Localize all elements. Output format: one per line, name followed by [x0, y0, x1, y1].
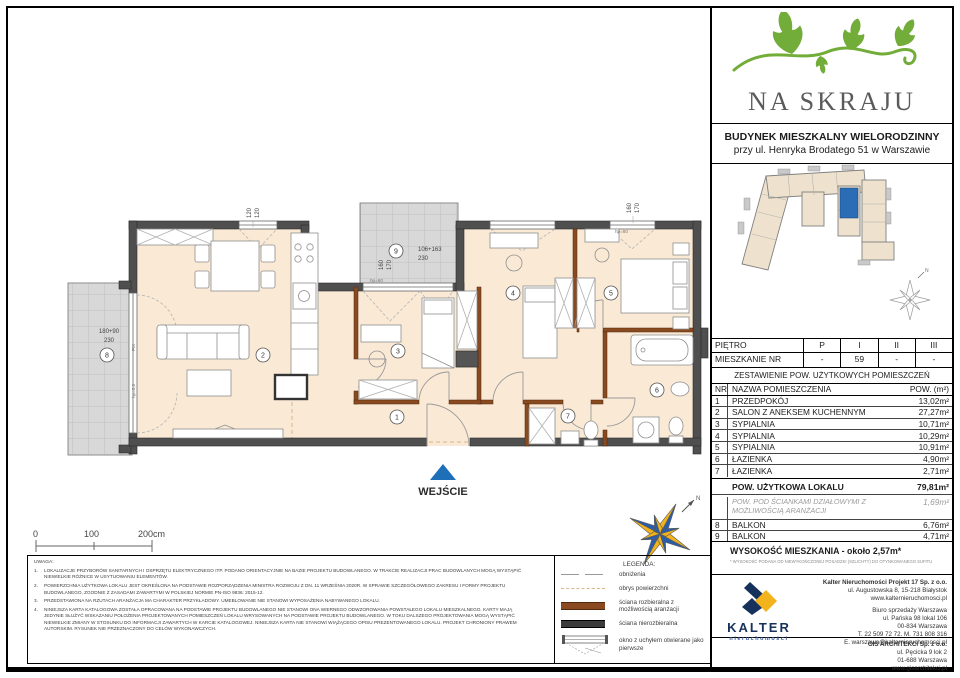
development-name: NA SKRAJU	[712, 87, 952, 117]
dim-balcony9-2: 230	[418, 256, 429, 262]
areas-table: NR NAZWA POMIESZCZENIA POW. (m²) 1 PRZED…	[712, 384, 952, 479]
areas-table-header: NR NAZWA POMIESZCZENIA POW. (m²)	[712, 384, 952, 396]
kalter-website-link[interactable]: www.kalternieruchomosci.pl	[798, 595, 947, 603]
room-label-9: 9	[394, 249, 398, 256]
dim-bedroom5-window-a: 160	[627, 202, 633, 213]
note-item: 2. POWIERZCHNIA UŻYTKOWA LOKALU JEST OKR…	[34, 583, 548, 596]
dim-salon-window-b: 120	[255, 207, 261, 218]
legend-item-demountable-wall: ściana rozbieralna z możliwością aranżac…	[561, 599, 704, 615]
partition-area-label: POW. POD ŚCIANKAMI DZIAŁOWYMI Z MOŻLIWOŚ…	[728, 497, 891, 515]
notes-box: UWAGA: 1. LOKALIZACJE PRZYBORÓW SANITARN…	[27, 555, 555, 664]
dim-balcony8-2: 230	[104, 338, 115, 344]
floor-plan-drawing: 1 2 3 4 5 6 7 8 9 120 120 180+90	[25, 183, 715, 518]
title-block: NA SKRAJU BUDYNEK MIESZKALNY WIELORODZIN…	[710, 8, 952, 667]
table-row: 2 SALON Z ANEKSEM KUCHENNYM 27,27m²	[712, 407, 952, 419]
site-plan: N	[712, 164, 952, 339]
outline-symbol	[561, 588, 619, 589]
dim-balcony9-1: 106+163	[418, 247, 442, 253]
developer-contact: KALTER nieruchomości Kalter Nieruchomośc…	[712, 575, 952, 638]
room-label-6: 6	[655, 388, 659, 395]
total-area-value: 79,81m²	[891, 482, 952, 492]
kalter-logo-mark	[732, 581, 786, 615]
legend-item-fixed-wall: ściana nierozbieralna	[561, 620, 704, 628]
dim-salon-window-a: 120	[247, 207, 253, 218]
legend-item-lowering: obniżenia	[561, 571, 704, 579]
floor-1: I	[841, 339, 878, 352]
lowering-symbol	[561, 574, 619, 575]
demountable-wall-symbol	[561, 602, 619, 610]
notes-title: UWAGA:	[34, 560, 548, 567]
balcony-row: 8 BALKON 6,76m²	[712, 520, 952, 531]
dim-balcony9-side-b: 170	[387, 259, 393, 270]
scale-tick-200: 200cm	[138, 529, 165, 539]
architect-contact: GIS ARCHITEKCI Sp. z o.o. ul. Pęcicka 9 …	[712, 638, 952, 672]
label-hp60-a: hp=60	[370, 278, 383, 283]
floor-3: III	[916, 339, 952, 352]
balcony-row: 9 BALKON 4,71m²	[712, 531, 952, 542]
room-label-5: 5	[609, 291, 613, 298]
site-plan-compass: N	[890, 268, 930, 320]
apartment-height: WYSOKOŚĆ MIESZKANIA - około 2,57m* * WYS…	[712, 542, 952, 575]
entrance-marker: WEJŚCIE	[418, 464, 468, 498]
gis-website-link[interactable]: www.gisarchitekci.pl	[712, 665, 947, 673]
room-label-2: 2	[261, 353, 265, 360]
balcony-8	[68, 283, 132, 455]
room-label-3: 3	[396, 349, 400, 356]
dim-bedroom5-window-b: 170	[635, 202, 641, 213]
floor-plan: 1 2 3 4 5 6 7 8 9 120 120 180+90	[25, 183, 715, 518]
table-row: 7 ŁAZIENKA 2,71m²	[712, 465, 952, 477]
note-item: 1. LOKALIZACJE PRZYBORÓW SANITARNYCH I O…	[34, 568, 548, 581]
table-row: 4 SYPIALNIA 10,29m²	[712, 430, 952, 442]
note-item: 3. PRZEDSTAWIONA NA RZUTACH ARANŻACJA MA…	[34, 598, 548, 605]
floor-label: PIĘTRO	[712, 339, 804, 352]
total-area-label: POW. UŻYTKOWA LOKALU	[728, 482, 891, 492]
developer-logo: NA SKRAJU	[712, 8, 952, 124]
ivy-vine-graphic	[722, 12, 942, 84]
table-row: 6 ŁAZIENKA 4,90m²	[712, 454, 952, 466]
legend-title: LEGENDA:	[623, 561, 704, 568]
window-symbol	[561, 634, 619, 656]
apartment-number-row: MIESZKANIE NR - 59 - -	[712, 353, 952, 367]
room-label-8: 8	[105, 353, 109, 360]
dim-balcony9-side-a: 160	[379, 259, 385, 270]
floor-row: PIĘTRO P I II III	[712, 339, 952, 353]
height-footnote: * WYSOKOŚĆ PODANA OD NIEWYKOŃCZONEJ POSA…	[730, 559, 946, 564]
label-hp60-b: hp=60	[615, 229, 628, 234]
floor-2: II	[879, 339, 916, 352]
room-label-1: 1	[395, 415, 399, 422]
legend-item-outline: obrys powierzchni	[561, 585, 704, 593]
partition-area-row: POW. POD ŚCIANKAMI DZIAŁOWYMI Z MOŻLIWOŚ…	[712, 495, 952, 520]
building-name: BUDYNEK MIESZKALNY WIELORODZINNY przy ul…	[712, 124, 952, 164]
scale-tick-100: 100	[84, 529, 99, 539]
note-item: 4. NINIEJSZA KARTA KATALOGOWA ZOSTAŁA OP…	[34, 607, 548, 633]
north-arrow: N	[682, 496, 700, 512]
floor-selector-table: PIĘTRO P I II III MIESZKANIE NR - 59 - -	[712, 339, 952, 368]
legend-box: LEGENDA: obniżenia obrys powierzchni ści…	[554, 555, 711, 664]
sheet-frame: 1 2 3 4 5 6 7 8 9 120 120 180+90	[6, 6, 954, 672]
apartment-number-label: MIESZKANIE NR	[712, 353, 804, 367]
scale-bar: 0 100 200cm	[28, 526, 178, 556]
table-row: 1 PRZEDPOKÓJ 13,02m²	[712, 396, 952, 408]
table-row: 3 SYPIALNIA 10,71m²	[712, 419, 952, 431]
legend-item-window: okno z uchyłem otwierane jako pierwsze	[561, 634, 704, 656]
floor-p: P	[804, 339, 841, 352]
highlighted-apartment	[840, 188, 858, 218]
kalter-addresses: Kalter Nieruchomości Projekt 17 Sp. z o.…	[798, 579, 947, 635]
entrance-label: WEJŚCIE	[418, 485, 468, 498]
dim-balcony8-1: 180+90	[99, 329, 120, 335]
kalter-wordmark: KALTER	[720, 620, 798, 635]
height-label: WYSOKOŚĆ MIESZKANIA - około 2,57m*	[730, 546, 946, 556]
table-row: 5 SYPIALNIA 10,91m²	[712, 442, 952, 454]
label-hp00: hp=0,0	[131, 383, 136, 398]
fixed-wall-symbol	[561, 620, 619, 628]
label-fix: FIX	[131, 344, 136, 351]
room-label-4: 4	[511, 291, 515, 298]
total-area-row: POW. UŻYTKOWA LOKALU 79,81m²	[712, 479, 952, 495]
kalter-logo: KALTER nieruchomości	[720, 579, 798, 635]
apartment-number-value: 59	[841, 353, 878, 367]
north-label: N	[696, 496, 700, 502]
scale-tick-0: 0	[33, 529, 38, 539]
partition-area-value: 1,69m²	[891, 497, 952, 507]
areas-table-title: ZESTAWIENIE POW. UŻYTKOWYCH POMIESZCZEŃ	[712, 368, 952, 384]
room-label-7: 7	[566, 414, 570, 421]
site-north-label: N	[925, 268, 929, 274]
